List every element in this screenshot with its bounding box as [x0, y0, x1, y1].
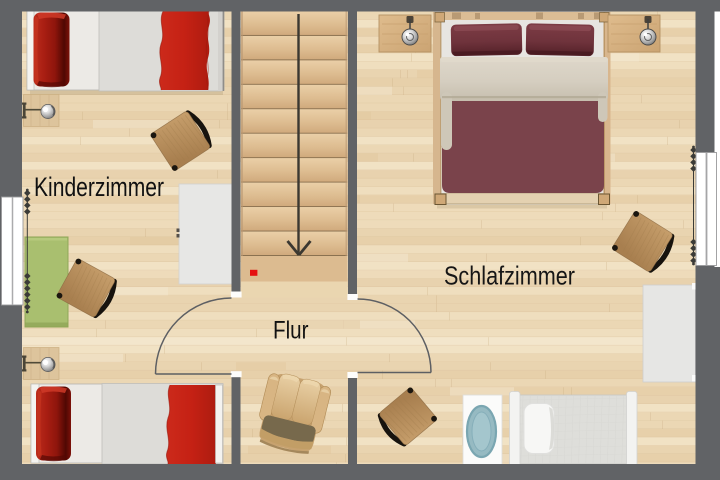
svg-text:Schlafzimmer: Schlafzimmer — [444, 261, 575, 291]
svg-text:Kinderzimmer: Kinderzimmer — [34, 172, 164, 202]
svg-text:Flur: Flur — [273, 317, 309, 345]
